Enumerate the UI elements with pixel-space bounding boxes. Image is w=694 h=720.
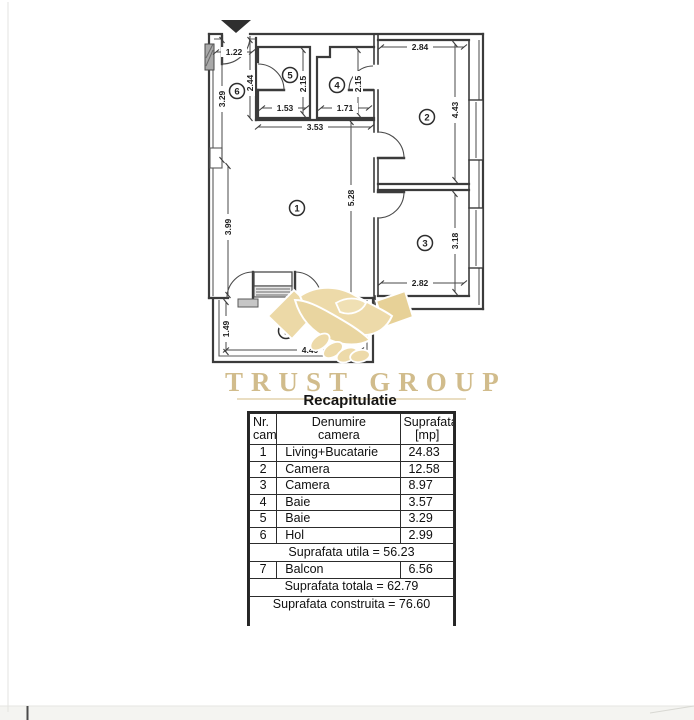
col-header-nr: Nr. cam. <box>250 414 277 445</box>
header-area-line1: Suprafata <box>403 415 453 429</box>
room-label-1: 1 <box>294 204 300 215</box>
summary-utila: Suprafata utila = 56.23 <box>250 544 454 562</box>
header-nr-line2: cam. <box>253 428 277 442</box>
table-row: 3 Camera 8.97 <box>250 478 454 495</box>
handshake-icon <box>268 288 413 366</box>
dim-hol-depth: 2.44 <box>245 74 255 91</box>
cell-nr: 4 <box>250 494 277 511</box>
entrance-arrow-icon <box>221 20 251 33</box>
dim-baie5-width: 1.53 <box>277 103 294 113</box>
cell-nr: 2 <box>250 461 277 478</box>
cell-area: 24.83 <box>401 445 454 462</box>
room-label-2: 2 <box>424 113 429 124</box>
header-name-line2: camera <box>318 428 360 442</box>
cell-name: Baie <box>277 494 401 511</box>
room-camera-2 <box>378 40 483 296</box>
cell-area: 8.97 <box>401 478 454 495</box>
header-area-line2: [mp] <box>415 428 439 442</box>
dim-camera2-depth: 4.43 <box>450 101 460 118</box>
dim-camera3-width: 2.82 <box>412 278 429 288</box>
room-label-5: 5 <box>287 71 293 82</box>
dim-camera2-width: 2.84 <box>412 42 429 52</box>
dim-balcon-depth: 1.49 <box>221 320 231 337</box>
cell-area: 12.58 <box>401 461 454 478</box>
table-row: 5 Baie 3.29 <box>250 511 454 528</box>
dim-baie4-width: 1.71 <box>337 103 354 113</box>
cell-name: Camera <box>277 461 401 478</box>
summary-totala-row: Suprafata totala = 62.79 <box>250 578 454 596</box>
table-header-row: Nr. cam. Denumire camera Suprafata [mp] <box>250 414 454 445</box>
recap-title: Recapitulatie <box>247 392 453 409</box>
room-label-4: 4 <box>334 81 340 92</box>
dim-living-side: 3.99 <box>223 218 233 235</box>
dim-baie4-depth: 2.15 <box>353 75 363 92</box>
recap-table: Nr. cam. Denumire camera Suprafata [mp] … <box>247 411 456 626</box>
cell-area: 2.99 <box>401 527 454 544</box>
summary-totala: Suprafata totala = 62.79 <box>250 578 454 596</box>
cell-nr: 6 <box>250 527 277 544</box>
cell-name: Hol <box>277 527 401 544</box>
cell-area: 6.56 <box>401 562 454 579</box>
dim-living-width: 3.53 <box>307 122 324 132</box>
scanned-floorplan-page: 1.22 2.44 3.29 1.53 2.15 1.71 2.15 2.84 … <box>0 0 694 720</box>
table-row-balcon: 7 Balcon 6.56 <box>250 562 454 579</box>
table-row: 2 Camera 12.58 <box>250 461 454 478</box>
summary-utila-row: Suprafata utila = 56.23 <box>250 544 454 562</box>
hol-window <box>205 44 214 70</box>
table-row: 4 Baie 3.57 <box>250 494 454 511</box>
cell-nr: 5 <box>250 511 277 528</box>
dim-camera3-depth: 3.18 <box>450 232 460 249</box>
dim-hol-length: 3.29 <box>217 90 227 107</box>
cell-area: 3.29 <box>401 511 454 528</box>
table-row: 1 Living+Bucatarie 24.83 <box>250 445 454 462</box>
cell-nr: 1 <box>250 445 277 462</box>
room-label-3: 3 <box>422 239 427 250</box>
header-name-line1: Denumire <box>312 415 366 429</box>
dim-baie5-depth: 2.15 <box>298 75 308 92</box>
dim-hol-width: 1.22 <box>226 47 243 57</box>
cell-nr: 3 <box>250 478 277 495</box>
summary-construita: Suprafata construita = 76.60 <box>250 596 454 626</box>
dim-living-depth: 5.28 <box>346 189 356 206</box>
cell-name: Baie <box>277 511 401 528</box>
cell-area: 3.57 <box>401 494 454 511</box>
cell-nr: 7 <box>250 562 277 579</box>
cell-name: Living+Bucatarie <box>277 445 401 462</box>
cell-name: Camera <box>277 478 401 495</box>
header-nr-line1: Nr. <box>253 415 269 429</box>
main-vertical-wall <box>374 34 378 296</box>
col-header-suprafata: Suprafata [mp] <box>401 414 454 445</box>
col-header-denumire: Denumire camera <box>277 414 401 445</box>
summary-construita-row: Suprafata construita = 76.60 <box>250 596 454 626</box>
room-label-6: 6 <box>234 87 239 98</box>
table-row: 6 Hol 2.99 <box>250 527 454 544</box>
cell-name: Balcon <box>277 562 401 579</box>
